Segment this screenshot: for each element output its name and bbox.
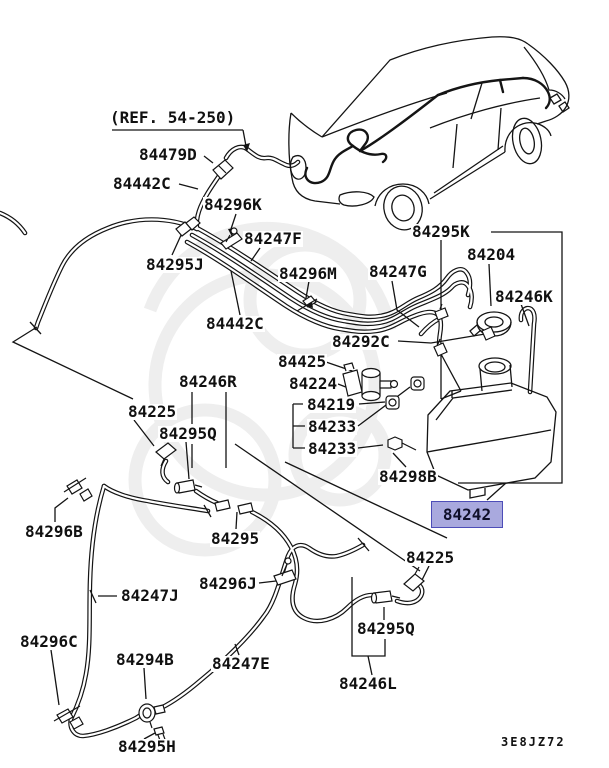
part-label-84224: 84224 <box>288 376 338 392</box>
part-label-84247E: 84247E <box>211 656 271 672</box>
highlighted-part-label-84242[interactable]: 84242 <box>431 501 503 528</box>
part-label-84204: 84204 <box>466 247 516 263</box>
part-label-84296M: 84296M <box>278 266 338 282</box>
part-label-84233: 84233 <box>307 419 357 435</box>
part-label-84298B: 84298B <box>378 469 438 485</box>
part-label-84292C: 84292C <box>331 334 391 350</box>
part-label-84233: 84233 <box>307 441 357 457</box>
parts-diagram-page: (REF. 54-250) 84242 3E8JZ72 84479D84442C… <box>0 0 609 768</box>
part-label-84442C: 84442C <box>112 176 172 192</box>
part-label-84296K: 84296K <box>203 197 263 213</box>
part-label-84296B: 84296B <box>24 524 84 540</box>
drawing-code: 3E8JZ72 <box>501 736 566 748</box>
part-label-84247G: 84247G <box>368 264 428 280</box>
part-label-84246R: 84246R <box>178 374 238 390</box>
part-label-84425: 84425 <box>277 354 327 370</box>
label-layer: (REF. 54-250) 84242 3E8JZ72 84479D84442C… <box>0 0 609 768</box>
part-label-84225: 84225 <box>405 550 455 566</box>
part-label-84247J: 84247J <box>120 588 180 604</box>
reference-note: (REF. 54-250) <box>110 110 235 126</box>
part-label-84246L: 84246L <box>338 676 398 692</box>
part-label-84247F: 84247F <box>243 231 303 247</box>
part-label-84295Q: 84295Q <box>356 621 416 637</box>
part-label-84442C: 84442C <box>205 316 265 332</box>
part-label-84295Q: 84295Q <box>158 426 218 442</box>
part-label-84295K: 84295K <box>411 224 471 240</box>
part-label-84295: 84295 <box>210 531 260 547</box>
part-label-84225: 84225 <box>127 404 177 420</box>
part-label-84295J: 84295J <box>145 257 205 273</box>
part-label-84219: 84219 <box>306 397 356 413</box>
part-label-84294B: 84294B <box>115 652 175 668</box>
part-label-84246K: 84246K <box>494 289 554 305</box>
part-label-84295H: 84295H <box>117 739 177 755</box>
part-label-84296J: 84296J <box>198 576 258 592</box>
part-label-84296C: 84296C <box>19 634 79 650</box>
part-label-84479D: 84479D <box>138 147 198 163</box>
